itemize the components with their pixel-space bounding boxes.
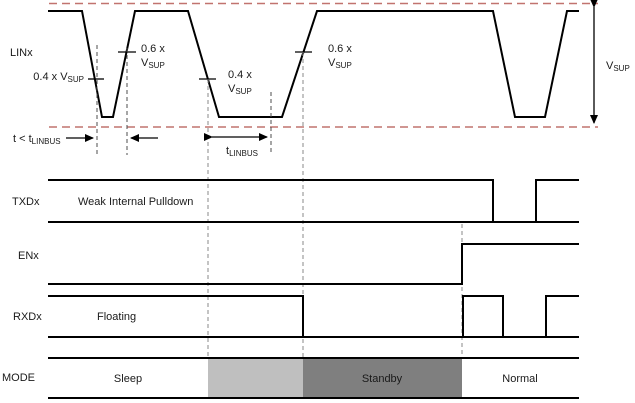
rxdx-pulse-2 [546,296,578,337]
mode-state-sleep: Sleep [114,373,142,385]
linx-label: LINx [10,47,33,59]
threshold-06-label-2-line1: 0.6 x [328,43,352,55]
threshold-04-label-2-line2: VSUP [228,83,252,96]
tlinbus-label: tLINBUS [226,145,258,158]
rxdx-label: RXDx [13,311,42,323]
rxdx-note: Floating [97,311,136,323]
threshold-04-label-1: 0.4 x VSUP [33,71,84,84]
threshold-06-label-1-line1: 0.6 x [141,43,165,55]
mode-label: MODE [2,372,35,384]
vsup-label: VSUP [606,60,630,73]
txdx-note: Weak Internal Pulldown [78,196,193,208]
linx-waveform [49,11,578,117]
mode-state-normal: Normal [502,373,537,385]
timing-diagram: LINx 0.4 x VSUP 0.6 x VSUP 0.4 x VSUP 0.… [0,0,635,403]
short-pulse-label: t < tLINBUS [13,133,61,146]
rxdx-pulse-1 [463,296,503,337]
txdx-label: TXDx [12,196,40,208]
mode-transition-region [208,359,303,398]
mode-state-standby: Standby [362,373,403,385]
enx-label: ENx [18,250,39,262]
threshold-06-label-2-line2: VSUP [328,57,352,70]
timing-diagram-canvas: LINx 0.4 x VSUP 0.6 x VSUP 0.4 x VSUP 0.… [0,0,635,403]
threshold-06-label-1-line2: VSUP [141,57,165,70]
threshold-04-label-2-line1: 0.4 x [228,69,252,81]
